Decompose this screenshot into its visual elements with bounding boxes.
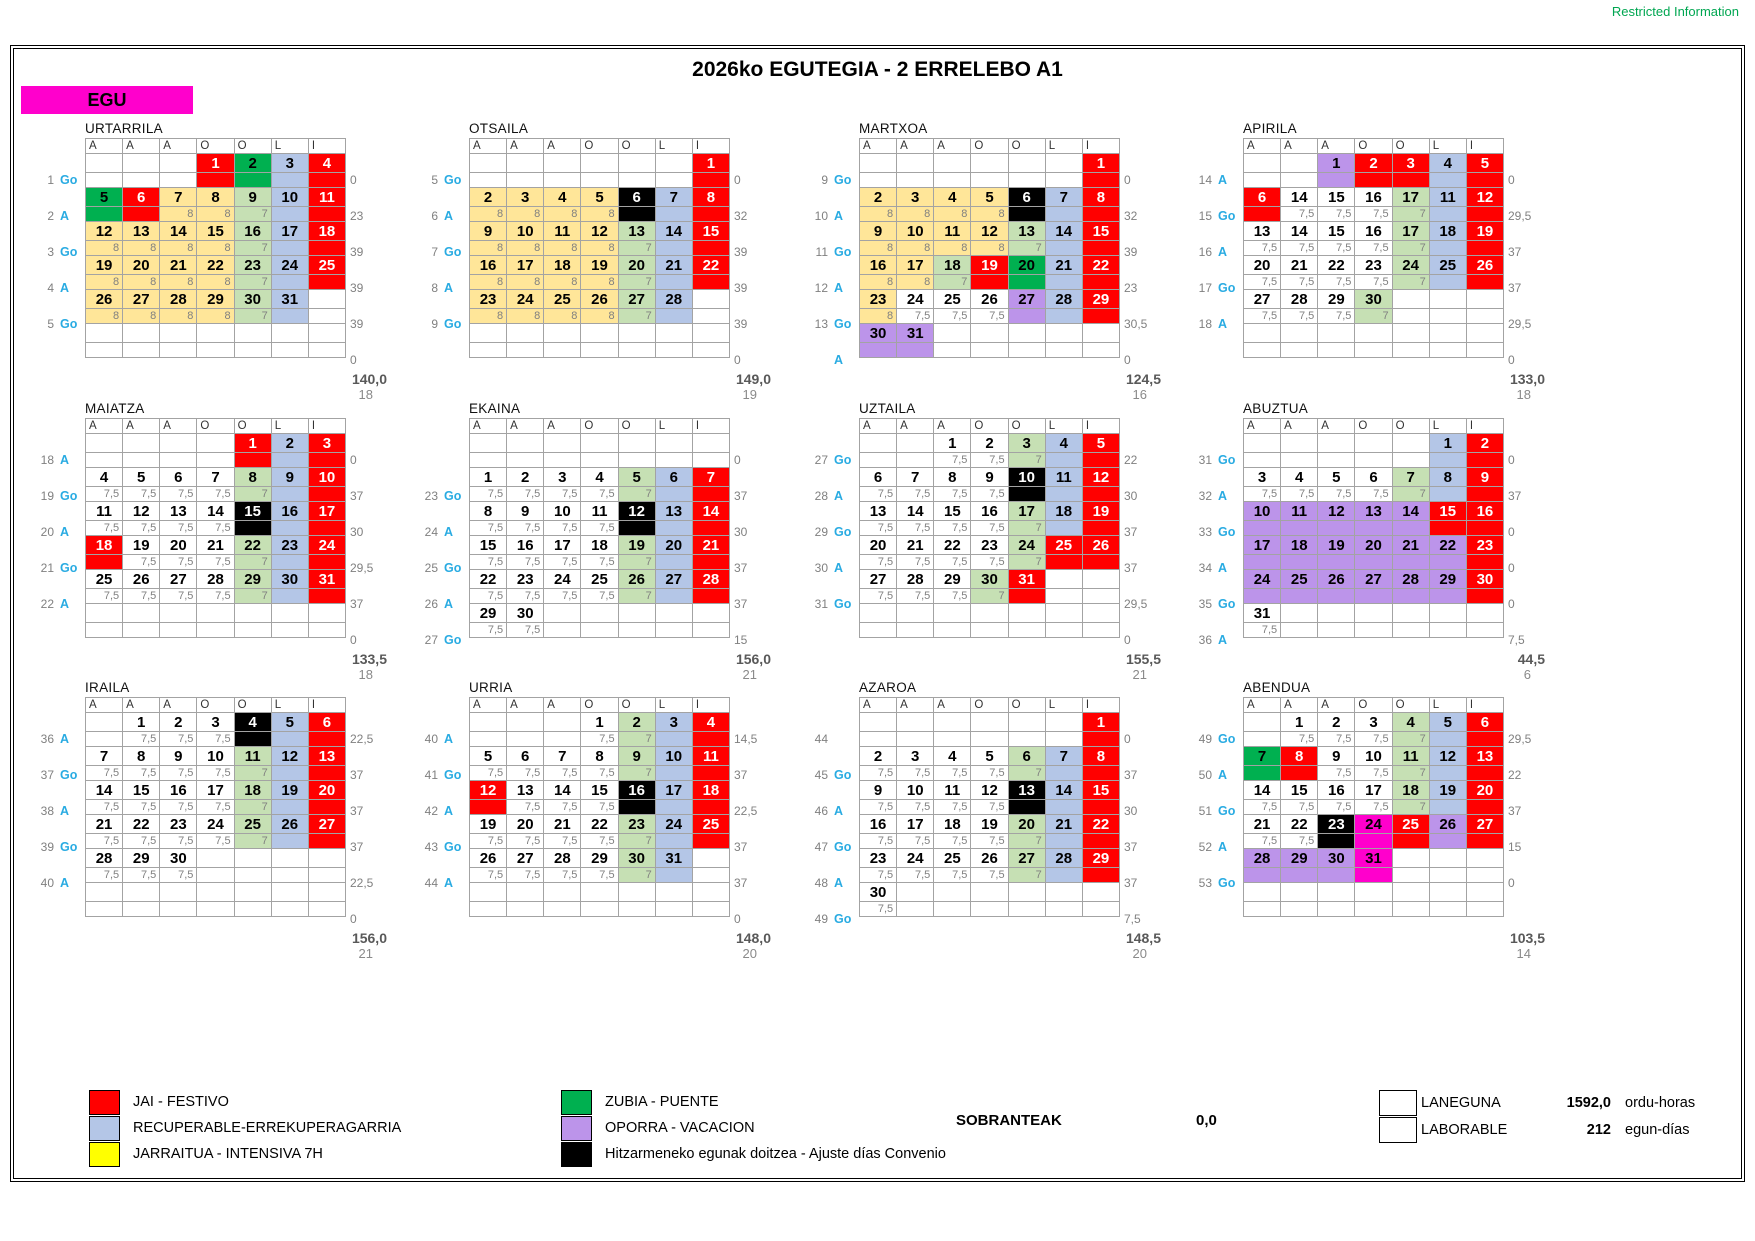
day-cell [897,713,934,732]
hour-cell [1045,521,1082,536]
week-total: 37 [730,749,770,785]
week-label-row: 10A [809,190,859,226]
week-total: 39 [346,226,386,262]
hour-cell: 7,5 [971,487,1008,502]
day-cell: 18 [581,536,618,555]
hour-cell [1244,902,1281,917]
day-cell [1466,290,1503,309]
day-cell [271,883,308,902]
hour-cell [1045,555,1082,570]
shift-label: Go [444,768,464,782]
dow-header-cell: A [897,698,934,713]
hour-cell: 8 [971,241,1008,256]
legend-label: Hitzarmeneko egunak doitzea - Ajuste día… [605,1146,946,1162]
day-cell: 9 [507,502,544,521]
dow-header-cell: L [655,698,692,713]
day-cell: 1 [1082,713,1119,732]
day-cell: 9 [1318,747,1355,766]
hour-cell [544,732,581,747]
hour-cell [971,275,1008,290]
dow-header-cell: A [860,139,897,154]
dow-header-cell: I [692,419,729,434]
week-label-row: 34A [1193,542,1243,578]
hour-cell: 7,5 [123,521,160,536]
hour-cell: 7 [1355,309,1392,324]
hour-cell [123,623,160,638]
day-cell: 22 [581,815,618,834]
day-cell [860,434,897,453]
day-cell: 8 [234,468,271,487]
hour-cell [1045,868,1082,883]
week-total: 39 [346,298,386,334]
dow-header-cell: A [86,419,123,434]
month-total-days: 19 [419,387,771,402]
day-cell: 29 [1082,290,1119,309]
hour-cell: 8 [86,241,123,256]
hour-cell: 7 [618,766,655,781]
shift-label: Go [60,489,80,503]
month-title: EKAINA [469,401,791,416]
dow-header-cell: A [897,419,934,434]
week-total: 22 [1504,749,1544,785]
week-number: 36 [41,732,54,746]
day-cell: 27 [507,849,544,868]
week-number: 42 [425,804,438,818]
shift-label: A [60,281,80,295]
day-cell: 27 [655,570,692,589]
day-cell: 1 [470,468,507,487]
hour-cell: 7,5 [160,732,197,747]
day-cell: 16 [160,781,197,800]
hour-cell: 7,5 [160,487,197,502]
shift-label: A [444,804,464,818]
day-cell: 4 [544,188,581,207]
week-label-row: 39Go [35,821,85,857]
hour-cell: 7 [618,589,655,604]
month-otsaila: OTSAILA5Go6A7Go8A9GoAAAOOLI1234567888889… [419,121,791,402]
hour-cell: 7 [234,309,271,324]
dow-header-cell: O [581,419,618,434]
hour-cell [934,343,971,358]
month-table: AAAOOLI1234567,57,57,5789101112137,57,57… [85,697,346,917]
day-cell: 10 [507,222,544,241]
week-total: 37 [1120,857,1160,893]
dow-header-cell: A [470,139,507,154]
day-cell: 10 [1244,502,1281,521]
day-cell: 20 [1355,536,1392,555]
week-total: 0 [1504,154,1544,190]
day-cell: 7 [544,747,581,766]
hour-cell [692,623,729,638]
shift-label: A [834,876,854,890]
day-cell: 26 [1466,256,1503,275]
dow-header-cell: O [581,698,618,713]
day-cell [1244,713,1281,732]
hour-cell: 7,5 [1244,241,1281,256]
week-label-row: 16A [1193,226,1243,262]
day-cell: 23 [470,290,507,309]
week-number: 48 [815,876,828,890]
day-cell [692,883,729,902]
laneguna-label: LANEGUNA [1421,1095,1533,1111]
dow-header-cell: I [308,419,345,434]
hour-cell [1466,343,1503,358]
day-cell: 17 [1392,222,1429,241]
laneguna-swatch [1379,1090,1417,1116]
hour-cell: 8 [470,275,507,290]
hour-cell: 8 [897,275,934,290]
week-total: 0 [730,893,770,929]
day-cell: 31 [271,290,308,309]
day-cell: 25 [934,849,971,868]
hour-cell: 7,5 [581,487,618,502]
hour-cell [1082,453,1119,468]
day-cell: 30 [234,290,271,309]
hour-cell [308,902,345,917]
day-cell [655,324,692,343]
day-cell: 6 [123,188,160,207]
week-number: 31 [815,597,828,611]
hour-cell [160,623,197,638]
day-cell: 30 [271,570,308,589]
week-total: 23 [346,190,386,226]
day-cell [160,324,197,343]
hour-cell: 7,5 [897,800,934,815]
hour-cell: 7 [618,275,655,290]
hour-cell: 8 [581,275,618,290]
laneguna-value: 1592,0 [1533,1095,1611,1111]
dow-header-cell: A [1281,139,1318,154]
day-cell: 22 [234,536,271,555]
dow-header-cell: I [308,139,345,154]
hour-cell: 8 [581,309,618,324]
week-number: 40 [41,876,54,890]
hour-cell [655,834,692,849]
hour-cell: 7,5 [544,766,581,781]
day-cell: 24 [1008,536,1045,555]
hour-cell [1082,207,1119,222]
week-total: 7,5 [1504,614,1544,650]
day-cell [470,154,507,173]
hour-cell: 7,5 [197,589,234,604]
day-cell: 13 [1244,222,1281,241]
hour-cell [1082,868,1119,883]
day-cell: 29 [1429,570,1466,589]
month-title: MAIATZA [85,401,407,416]
day-cell [1244,324,1281,343]
month-total-days: 20 [419,946,771,961]
hour-cell [123,343,160,358]
week-total: 37 [346,785,386,821]
day-cell: 25 [1281,570,1318,589]
day-cell [655,434,692,453]
day-cell [1244,434,1281,453]
hour-cell: 8 [123,309,160,324]
hour-cell: 7,5 [1244,623,1281,638]
hour-cell [1429,902,1466,917]
hour-cell [1045,623,1082,638]
day-cell [308,849,345,868]
hour-cell [618,173,655,188]
dow-header-cell: O [1392,419,1429,434]
dow-header-cell: A [507,698,544,713]
day-cell: 5 [1082,434,1119,453]
week-total: 29,5 [1504,190,1544,226]
week-label-row: 5Go [419,154,469,190]
hour-cell: 7,5 [934,309,971,324]
day-cell: 19 [123,536,160,555]
hour-cell [1318,343,1355,358]
hour-cell: 7,5 [1318,766,1355,781]
dow-header-cell: A [470,419,507,434]
day-cell [897,604,934,623]
hour-cell [271,555,308,570]
month-total-hours: 103,5 [1193,930,1545,946]
shift-label: Go [834,840,854,854]
dow-header-cell: A [507,419,544,434]
day-cell: 22 [1082,256,1119,275]
week-label-row: 9Go [809,154,859,190]
hour-cell: 7 [1008,241,1045,256]
day-cell [197,604,234,623]
week-label-row [1193,893,1243,929]
dow-header-cell: O [618,698,655,713]
hour-cell [470,902,507,917]
hour-cell [1318,173,1355,188]
ajuste-swatch [561,1142,592,1167]
day-cell: 5 [123,468,160,487]
hour-cell: 7,5 [507,589,544,604]
day-cell: 18 [86,536,123,555]
month-table: AAAOOLI123456788888910111213141588887161… [469,138,730,358]
day-cell: 7 [1045,188,1082,207]
hour-cell [1281,623,1318,638]
day-cell: 18 [1281,536,1318,555]
hour-cell [1318,623,1355,638]
week-number: 1 [47,173,54,187]
week-label-row: 50A [1193,749,1243,785]
day-cell [1355,324,1392,343]
week-label-row: 3Go [35,226,85,262]
hour-cell [1466,868,1503,883]
month-title: APIRILA [1243,121,1565,136]
shift-label: Go [60,840,80,854]
day-cell: 25 [692,815,729,834]
day-cell: 4 [692,713,729,732]
hour-cell: 7,5 [971,521,1008,536]
day-cell: 16 [860,815,897,834]
hour-cell: 7,5 [507,834,544,849]
hour-cell [308,521,345,536]
day-cell: 8 [1082,188,1119,207]
day-cell: 30 [860,883,897,902]
hour-cell [1392,343,1429,358]
day-cell: 2 [860,188,897,207]
month-total-hours: 156,0 [419,651,771,667]
week-number: 28 [815,489,828,503]
laneguna-unit: ordu-horas [1625,1095,1695,1111]
dow-header-cell: I [1082,419,1119,434]
shift-label: A [834,209,854,223]
day-cell [308,290,345,309]
day-cell: 25 [934,290,971,309]
hour-cell [1429,868,1466,883]
month-grid: 40A41Go42A43Go44AAAAOOLI12347,5756789101… [419,697,791,929]
day-cell [1355,883,1392,902]
day-cell: 21 [86,815,123,834]
day-cell [197,883,234,902]
hour-cell [1045,487,1082,502]
shift-label: Go [1218,597,1238,611]
hour-cell [1392,589,1429,604]
day-cell: 31 [655,849,692,868]
hour-cell [1008,589,1045,604]
day-cell: 21 [160,256,197,275]
week-labels: 1Go2A3Go4A5Go [35,138,85,370]
hour-cell: 8 [507,241,544,256]
day-cell: 18 [1392,781,1429,800]
dow-header-cell: A [1318,419,1355,434]
dow-header-cell: L [1429,698,1466,713]
day-cell: 27 [1008,290,1045,309]
hour-cell: 7,5 [470,834,507,849]
day-cell: 15 [470,536,507,555]
day-cell: 7 [655,188,692,207]
day-cell: 2 [234,154,271,173]
hour-cell [1244,343,1281,358]
day-cell: 14 [655,222,692,241]
day-cell: 11 [692,747,729,766]
totals-box: LANEGUNA 1592,0 ordu-horas LABORABLE 212… [1379,1089,1695,1143]
day-cell: 6 [160,468,197,487]
week-label-row: 5Go [35,298,85,334]
hour-cell: 7,5 [1281,487,1318,502]
week-number: 50 [1199,768,1212,782]
hour-cell [1429,555,1466,570]
week-number: 29 [815,525,828,539]
day-cell [971,713,1008,732]
week-labels: 40A41Go42A43Go44A [419,697,469,929]
day-cell: 10 [897,222,934,241]
day-cell: 8 [470,502,507,521]
hour-cell: 7,5 [581,766,618,781]
day-cell: 28 [655,290,692,309]
hour-cell [308,868,345,883]
hour-cell: 7,5 [123,487,160,502]
day-cell: 7 [1392,468,1429,487]
month-table: AAAOOLI123456789107,57,57,57,57111213141… [85,418,346,638]
hour-cell [692,453,729,468]
week-number: 30 [815,561,828,575]
hour-cell [1355,623,1392,638]
hour-cell: 7,5 [1281,800,1318,815]
laborable-row: LABORABLE 212 egun-días [1379,1116,1695,1143]
hour-cell: 7,5 [934,834,971,849]
day-cell: 26 [1429,815,1466,834]
day-cell [1045,713,1082,732]
laborable-unit: egun-días [1625,1122,1690,1138]
day-cell [1392,290,1429,309]
hour-cell [1318,555,1355,570]
week-label-row: 6A [419,190,469,226]
hour-cell [507,902,544,917]
day-cell [1082,883,1119,902]
day-cell: 21 [897,536,934,555]
hour-cell [123,453,160,468]
hour-cell [655,309,692,324]
hour-cell [618,623,655,638]
day-cell: 2 [618,713,655,732]
week-total: 0 [346,614,386,650]
day-cell: 9 [234,188,271,207]
hour-cell: 7,5 [1355,207,1392,222]
hour-cell: 7,5 [1281,309,1318,324]
week-number: 40 [425,732,438,746]
day-cell: 13 [123,222,160,241]
shift-label: Go [834,245,854,259]
hour-cell [271,453,308,468]
shift-label: A [1218,633,1238,647]
day-cell: 24 [544,570,581,589]
hour-cell [1082,275,1119,290]
hour-cell [655,766,692,781]
day-cell: 2 [860,747,897,766]
hour-cell: 8 [581,241,618,256]
restricted-information-label: Restricted Information [1612,4,1739,19]
week-label-row: 35Go [1193,578,1243,614]
hour-cell [692,241,729,256]
hour-cell [1244,589,1281,604]
hour-cell [1466,173,1503,188]
hour-cell [271,275,308,290]
dow-header-cell: A [897,139,934,154]
week-label-row: 22A [35,578,85,614]
legend-left: JAI - FESTIVO RECUPERABLE-ERREKUPERAGARR… [89,1089,401,1167]
day-cell: 28 [544,849,581,868]
day-cell: 12 [1429,747,1466,766]
day-cell: 30 [971,570,1008,589]
hour-cell [308,623,345,638]
week-total: 37 [346,749,386,785]
day-cell: 4 [934,188,971,207]
week-total: 29,5 [1504,713,1544,749]
hour-cell: 7,5 [1318,207,1355,222]
day-cell: 13 [308,747,345,766]
hour-cell: 7,5 [897,309,934,324]
week-total: 0 [730,154,770,190]
hour-cell [1318,868,1355,883]
day-cell: 19 [470,815,507,834]
hour-cell [271,732,308,747]
day-cell [618,154,655,173]
day-cell: 6 [1008,747,1045,766]
week-label-row: 45Go [809,749,859,785]
hour-cell [1429,207,1466,222]
week-total: 0 [730,434,770,470]
hour-cell [1082,800,1119,815]
hour-cell [1008,173,1045,188]
hour-cell [692,309,729,324]
shift-label: Go [444,245,464,259]
hour-cell: 7,5 [897,868,934,883]
hour-cell [271,343,308,358]
hour-cell: 7 [1392,766,1429,781]
hour-cell: 7 [971,589,1008,604]
day-cell: 1 [934,434,971,453]
month-total-days: 14 [1193,946,1545,961]
month-total-hours: 44,5 [1193,651,1545,667]
hour-cell [308,732,345,747]
